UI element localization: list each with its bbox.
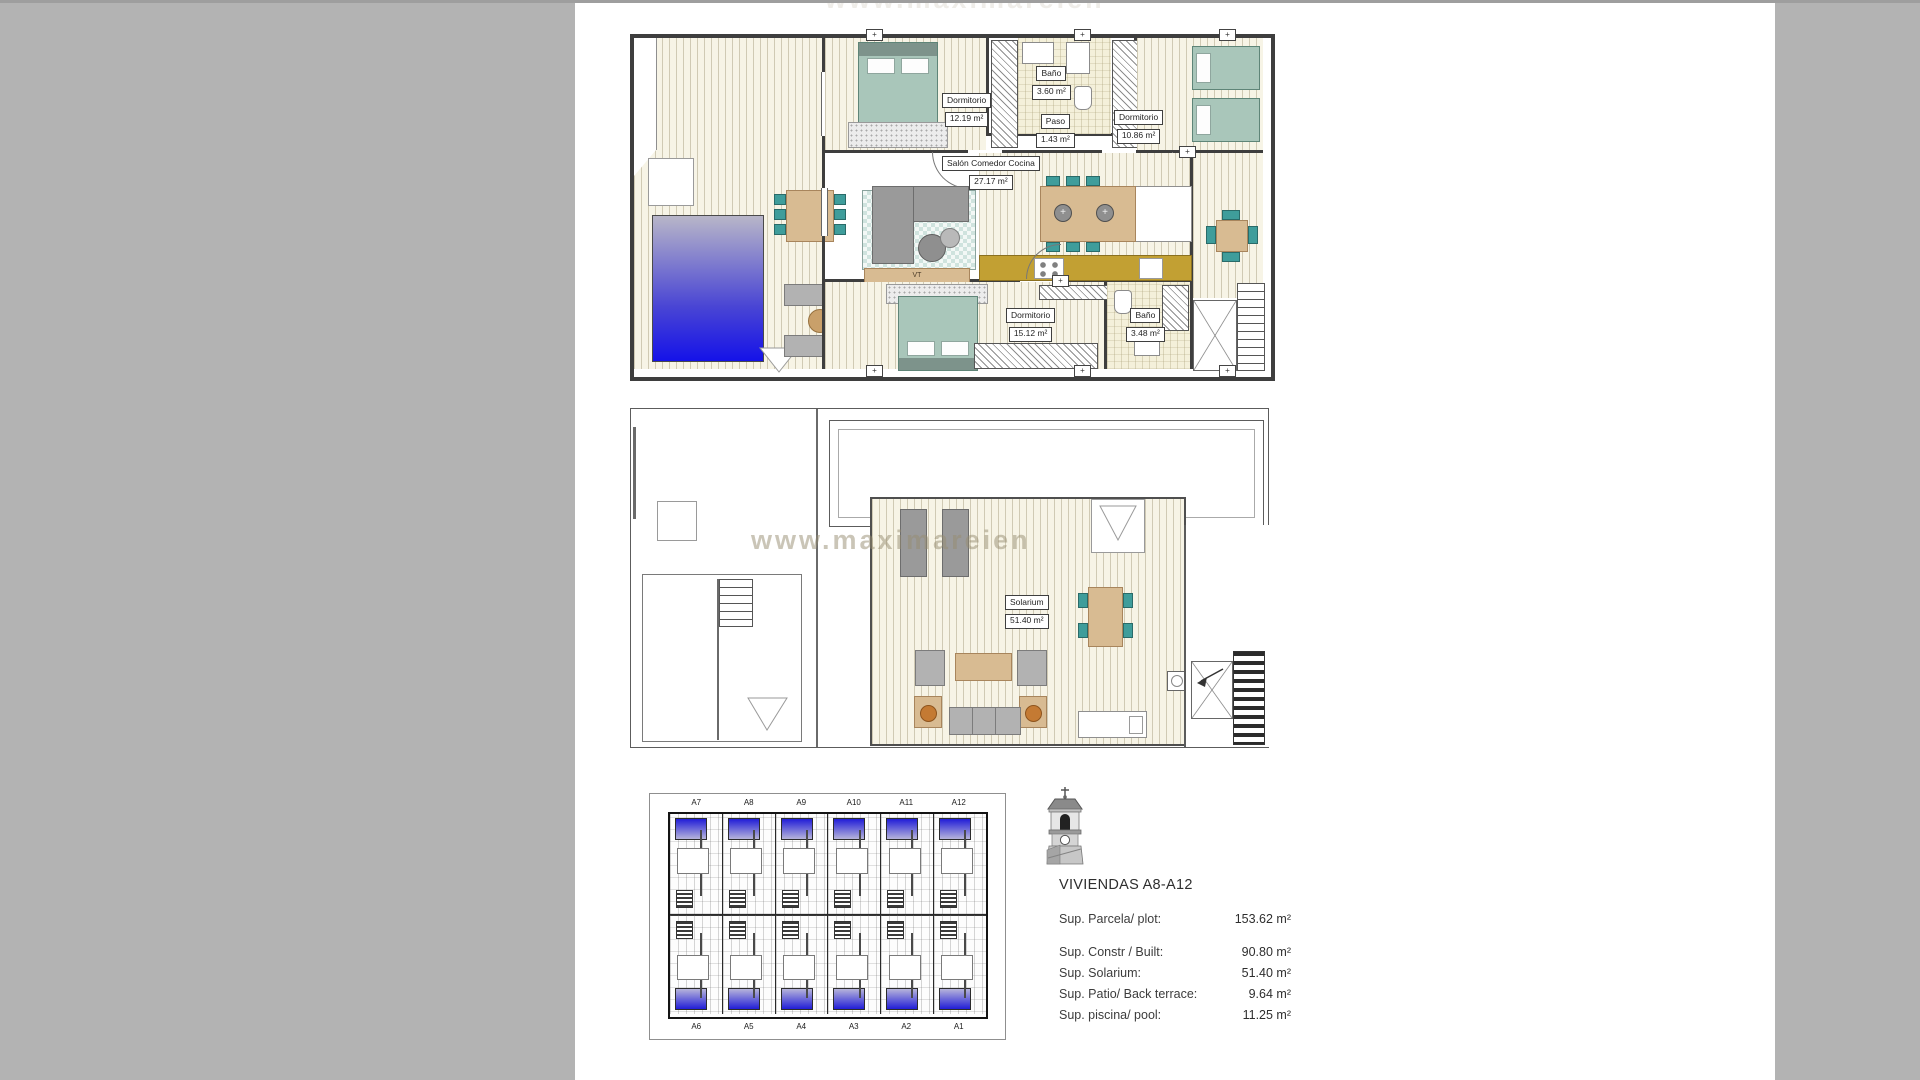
unit-plan — [723, 915, 776, 1014]
bedroom2-bed — [1192, 46, 1260, 90]
unit-plan — [670, 915, 723, 1014]
swimming-pool — [652, 215, 764, 362]
island-sink — [1096, 204, 1114, 222]
unit-plan — [828, 814, 881, 914]
bedroom3-bed — [898, 296, 978, 371]
unit-plan — [881, 915, 934, 1014]
unit-plan — [776, 915, 829, 1014]
site-block — [668, 812, 988, 1019]
unit-label: A2 — [880, 1022, 933, 1031]
unit-label: A5 — [723, 1022, 776, 1031]
planter-box — [648, 158, 694, 206]
room-area: 1.43 m² — [1036, 133, 1075, 148]
info-label: Sup. Parcela/ plot: — [1059, 912, 1161, 926]
room-name: Dormitorio — [1114, 110, 1163, 125]
info-panel: VIVIENDAS A8-A12 Sup. Parcela/ plot: 153… — [1059, 877, 1291, 1022]
site-labels-top: A7 A8 A9 A10 A11 A12 — [670, 798, 985, 807]
staircase — [1237, 283, 1265, 371]
stairs-below — [719, 579, 753, 627]
church-tower-logo-icon — [1037, 786, 1093, 866]
unit-label: A10 — [828, 798, 881, 807]
unit-label: A3 — [828, 1022, 881, 1031]
terrace-chair — [834, 224, 846, 235]
room-name: Dormitorio — [942, 93, 991, 108]
info-row: Sup. piscina/ pool: 11.25 m² — [1059, 1008, 1291, 1022]
entry-strip — [634, 38, 657, 150]
info-title: VIVIENDAS A8-A12 — [1059, 877, 1291, 893]
watermark-center: www.maximareien — [751, 525, 1031, 556]
unit-label: A1 — [933, 1022, 986, 1031]
tv-label: VT — [913, 272, 922, 279]
room-area: 3.48 m² — [1126, 327, 1165, 342]
room-label-dormitorio2: Dormitorio 10.86 m² — [1114, 110, 1163, 144]
unit-label: A6 — [670, 1022, 723, 1031]
wall-marker — [866, 365, 883, 377]
unit-label: A11 — [880, 798, 933, 807]
bathroom1-sink — [1022, 42, 1054, 64]
coffee-table — [940, 228, 960, 248]
room-label-dormitorio1: Dormitorio 12.19 m² — [942, 93, 991, 127]
room-area: 10.86 m² — [1117, 129, 1161, 144]
kitchen-chair — [1086, 176, 1100, 186]
wall-marker — [1179, 146, 1196, 158]
back-terrace-chair — [1248, 226, 1258, 244]
solarium-chair — [1078, 623, 1088, 638]
wall-marker — [1219, 365, 1236, 377]
stair-arrow-icon — [1193, 665, 1227, 691]
bedroom2-bed — [1192, 98, 1260, 142]
info-label: Sup. Patio/ Back terrace: — [1059, 987, 1197, 1001]
unit-label: A8 — [723, 798, 776, 807]
kitchen-chair — [1086, 242, 1100, 252]
kitchen-island-counter — [1134, 186, 1192, 242]
solarium-counter — [1078, 711, 1147, 738]
wall — [717, 579, 719, 740]
back-terrace-table — [1216, 220, 1248, 252]
plant — [1025, 705, 1042, 722]
info-value: 153.62 m² — [1235, 912, 1291, 926]
kitchen-chair — [1066, 242, 1080, 252]
terrace-chair — [774, 194, 786, 205]
unit-plan — [670, 814, 723, 914]
room-name: Baño — [1130, 308, 1160, 323]
kitchen-sink — [1139, 258, 1163, 279]
sliding-door — [821, 188, 828, 236]
unit-plan — [881, 814, 934, 914]
solarium-coffee-table — [955, 653, 1012, 681]
staircase-down — [1233, 651, 1265, 745]
room-area: 15.12 m² — [1009, 327, 1053, 342]
info-value: 9.64 m² — [1249, 987, 1291, 1001]
room-name: Baño — [1036, 66, 1066, 81]
sofa — [949, 707, 1021, 735]
plan-sheet: www.maximareien — [575, 0, 1775, 1080]
kitchen-chair — [1046, 176, 1060, 186]
room-area: 3.60 m² — [1032, 85, 1071, 100]
vent-marker — [747, 697, 788, 731]
island-sink — [1054, 204, 1072, 222]
ground-floor-plan: Dormitorio 12.19 m² Baño 3.60 m² Paso 1.… — [630, 34, 1275, 381]
unit-row-bottom — [670, 915, 986, 1014]
solarium-chair — [1078, 593, 1088, 608]
info-row: Sup. Constr / Built: 90.80 m² — [1059, 945, 1291, 959]
room-label-salon: Salón Comedor Cocina 27.17 m² — [942, 156, 1040, 190]
unit-row-top — [670, 814, 986, 914]
room-area: 27.17 m² — [969, 175, 1013, 190]
room-label-bano1: Baño 3.60 m² — [1032, 66, 1071, 100]
wall-marker — [866, 29, 883, 41]
room-name: Salón Comedor Cocina — [942, 156, 1040, 171]
closet — [991, 40, 1018, 148]
solarium-floor-plan: www.maximareien Solarium 51.40 m² — [630, 408, 1269, 748]
page-top-edge — [0, 0, 1920, 3]
unit-label: A7 — [670, 798, 723, 807]
wall-marker — [1219, 29, 1236, 41]
info-label: Sup. piscina/ pool: — [1059, 1008, 1161, 1022]
room-area: 12.19 m² — [945, 112, 989, 127]
stair-void — [1193, 300, 1237, 371]
info-value: 90.80 m² — [1242, 945, 1291, 959]
armchair — [915, 650, 945, 686]
back-terrace-chair — [1206, 226, 1216, 244]
room-label-paso: Paso 1.43 m² — [1036, 114, 1075, 148]
terrace-chair — [774, 209, 786, 220]
unit-label: A9 — [775, 798, 828, 807]
wall — [816, 409, 818, 747]
info-value: 11.25 m² — [1243, 1008, 1291, 1022]
unit-plan — [776, 814, 829, 914]
back-terrace-chair — [1222, 252, 1240, 262]
plant — [920, 705, 937, 722]
room-label-dormitorio3: Dormitorio 15.12 m² — [1006, 308, 1055, 342]
info-label: Sup. Solarium: — [1059, 966, 1141, 980]
unit-plan — [934, 814, 986, 914]
room-name: Dormitorio — [1006, 308, 1055, 323]
kitchen-chair — [1066, 176, 1080, 186]
sofa-chaise — [872, 186, 914, 264]
armchair — [1017, 650, 1047, 686]
unit-plan — [828, 915, 881, 1014]
unit-label: A12 — [933, 798, 986, 807]
info-label: Sup. Constr / Built: — [1059, 945, 1163, 959]
room-name: Paso — [1041, 114, 1070, 129]
skylight-triangle — [1099, 505, 1137, 541]
wall-marker — [1052, 275, 1069, 287]
info-value: 51.40 m² — [1242, 966, 1291, 980]
room-label-solarium: Solarium 51.40 m² — [1005, 595, 1049, 629]
wall-marker — [1074, 29, 1091, 41]
info-row: Sup. Patio/ Back terrace: 9.64 m² — [1059, 987, 1291, 1001]
skylight-box — [657, 501, 697, 541]
terrace-chair — [834, 209, 846, 220]
back-terrace-chair — [1222, 210, 1240, 220]
terrace-chair — [774, 224, 786, 235]
room-label-bano2: Baño 3.48 m² — [1126, 308, 1165, 342]
bathroom1-toilet — [1074, 86, 1092, 110]
bedroom1-rug — [848, 122, 948, 148]
solarium-chair — [1123, 623, 1133, 638]
info-row: Sup. Solarium: 51.40 m² — [1059, 966, 1291, 980]
terrace-chair — [834, 194, 846, 205]
unit-plan — [723, 814, 776, 914]
solarium-dining-table — [1088, 587, 1123, 647]
unit-label: A4 — [775, 1022, 828, 1031]
site-labels-bottom: A6 A5 A4 A3 A2 A1 — [670, 1022, 985, 1031]
solarium-chair — [1123, 593, 1133, 608]
room-area: 51.40 m² — [1005, 614, 1049, 629]
info-row: Sup. Parcela/ plot: 153.62 m² — [1059, 912, 1291, 926]
site-plan: A7 A8 A9 A10 A11 A12 — [649, 793, 1006, 1040]
wall — [633, 427, 636, 519]
room-name: Solarium — [1005, 595, 1049, 610]
bathroom2-shower — [1162, 285, 1189, 331]
wall-marker — [1074, 365, 1091, 377]
unit-plan — [934, 915, 986, 1014]
